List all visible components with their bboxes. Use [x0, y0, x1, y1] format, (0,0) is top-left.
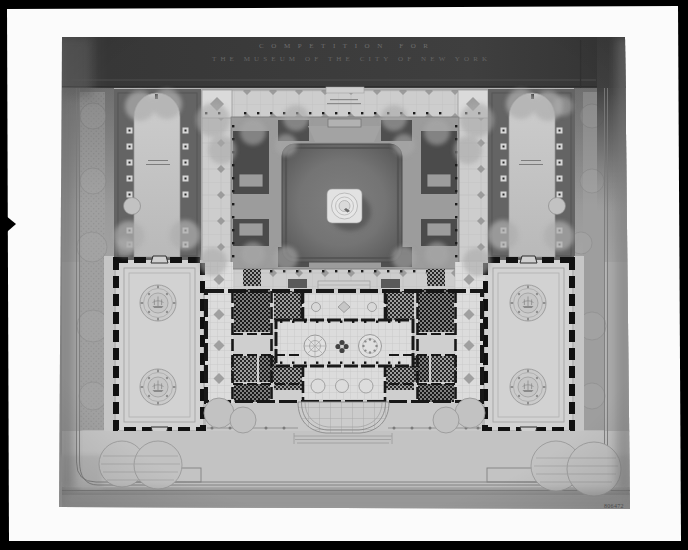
svg-text:806472: 806472: [604, 503, 624, 509]
